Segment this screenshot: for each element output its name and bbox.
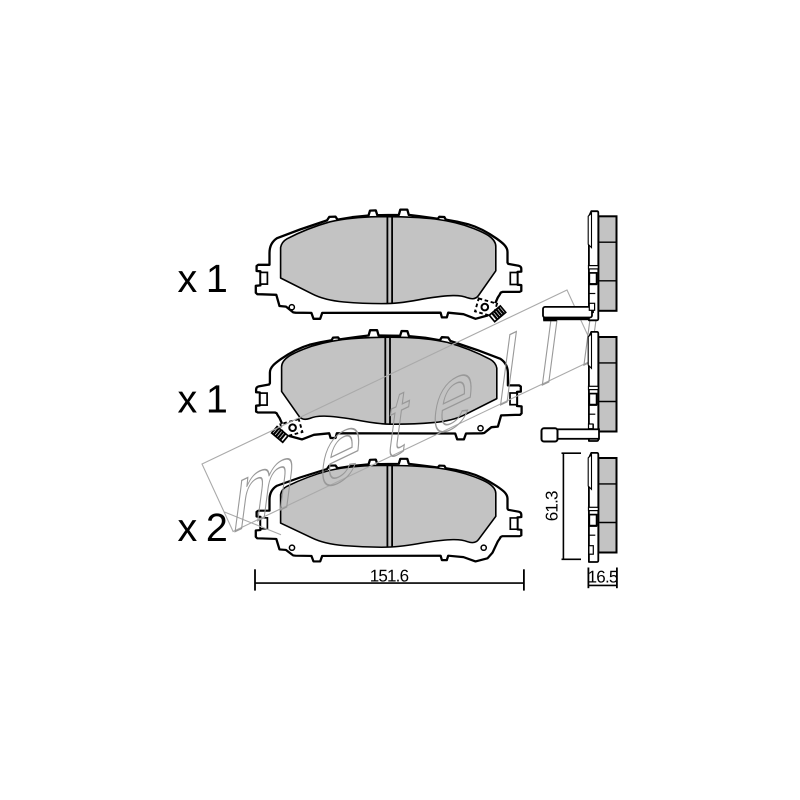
svg-text:x 2: x 2 [178, 506, 227, 550]
svg-text:x 1: x 1 [178, 257, 227, 301]
svg-text:x 1: x 1 [178, 378, 227, 422]
svg-text:16.5: 16.5 [588, 567, 618, 586]
svg-text:61.3: 61.3 [543, 491, 562, 521]
svg-text:151.6: 151.6 [370, 567, 409, 586]
